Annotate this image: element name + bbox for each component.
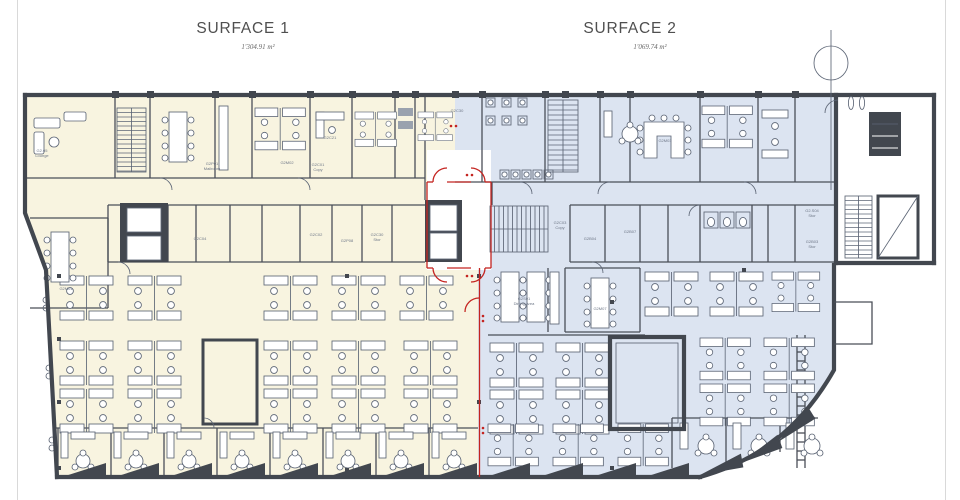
column [479, 91, 486, 98]
column-dot [610, 300, 614, 304]
column-dot [57, 274, 61, 278]
column [249, 91, 256, 98]
column [147, 91, 154, 98]
room-label: Stor [808, 244, 816, 249]
surface2-area: 1'069.74 m² [633, 43, 667, 51]
floor-plan-page: SURFACE 1 1'304.91 m² SURFACE 2 1'069.74… [0, 0, 960, 500]
column [212, 91, 219, 98]
column [392, 91, 399, 98]
room-label: Lounge [35, 153, 49, 158]
lockers [219, 106, 228, 170]
red-marker-dot [482, 432, 485, 435]
column [755, 91, 762, 98]
column-dot [742, 268, 746, 272]
room-label: G2M01 [59, 286, 73, 291]
room-label: G2M03 [658, 138, 672, 143]
copier [398, 108, 413, 116]
column-dot [345, 274, 349, 278]
red-marker-dot [482, 320, 485, 323]
column [627, 91, 634, 98]
floor-plan-drawing: SURFACE 1 1'304.91 m² SURFACE 2 1'069.74… [0, 0, 960, 500]
surface1-title: SURFACE 1 [196, 20, 289, 37]
room-label: Copy [555, 225, 564, 230]
elevator-car [127, 208, 161, 232]
room-label: G2C30 [451, 108, 464, 113]
column-dot [57, 400, 61, 404]
kitchen-counter [550, 272, 559, 324]
column [697, 91, 704, 98]
column [542, 91, 549, 98]
room-label: G2M07 [593, 306, 607, 311]
column [112, 91, 119, 98]
column [792, 91, 799, 98]
desk [762, 110, 788, 118]
column [307, 91, 314, 98]
desk [762, 150, 788, 158]
escalator-icon [848, 97, 853, 110]
room-label: Copy [313, 167, 322, 172]
elevator-car [127, 236, 161, 260]
room-label: G2B07 [624, 229, 637, 234]
service-block [869, 112, 901, 156]
red-marker-dot [482, 315, 485, 318]
elevator-car [430, 233, 457, 259]
room-label: Stor [808, 213, 816, 218]
column-dot [57, 466, 61, 470]
room-label: G2M02 [280, 160, 294, 165]
room-label: G2B04 [584, 236, 597, 241]
red-marker-dot [482, 427, 485, 430]
room-label: G2C02 [310, 232, 323, 237]
column-dot [57, 337, 61, 341]
titles: SURFACE 1 1'304.91 m² SURFACE 2 1'069.74… [196, 20, 676, 51]
red-marker-dot [466, 174, 469, 177]
room-label: Mailroom [204, 166, 221, 171]
red-marker-dot [471, 275, 474, 278]
column-dot [610, 466, 614, 470]
red-marker-dot [450, 125, 453, 128]
column [412, 91, 419, 98]
copier [398, 121, 413, 129]
elevator-car [430, 205, 457, 231]
surface1-area: 1'304.91 m² [241, 43, 275, 51]
room-label: Stor [373, 237, 381, 242]
desk [316, 112, 344, 120]
red-marker-dot [455, 125, 458, 128]
column [562, 91, 569, 98]
room-label: Dining Area [514, 301, 535, 306]
column [349, 91, 356, 98]
column [452, 91, 459, 98]
chair [772, 123, 779, 130]
red-marker-dot [471, 174, 474, 177]
surface2-title: SURFACE 2 [583, 20, 676, 37]
chair [329, 127, 336, 134]
shaft-diagonal [878, 196, 918, 258]
column [597, 91, 604, 98]
red-marker-dot [466, 275, 469, 278]
room-label: G2P08 [341, 238, 354, 243]
room-label: G2C04 [194, 236, 207, 241]
escalator-icon [859, 97, 864, 110]
room-label: G2C21 [324, 135, 337, 140]
stair-east [845, 196, 872, 258]
chair [772, 139, 779, 146]
